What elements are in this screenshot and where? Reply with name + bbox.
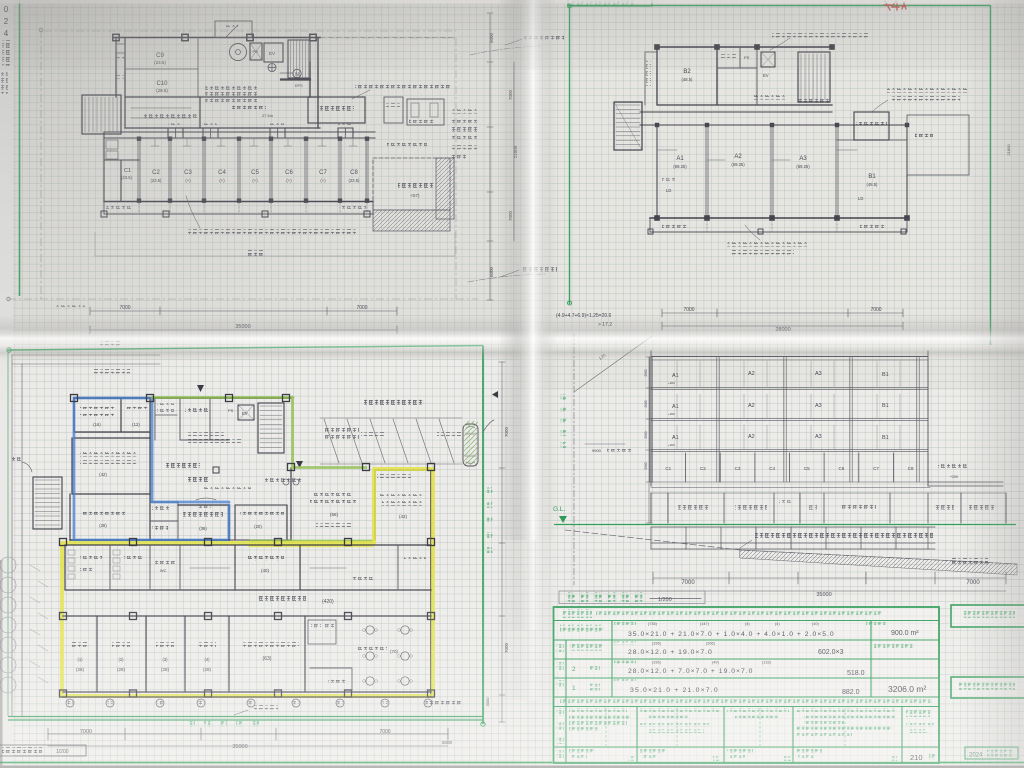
svg-text:C5: C5 <box>804 466 810 471</box>
svg-text:B1: B1 <box>882 435 889 441</box>
svg-text:A3: A3 <box>815 371 822 377</box>
svg-text:C2: C2 <box>700 466 706 471</box>
svg-text:C3: C3 <box>735 466 741 471</box>
svg-text:A2: A2 <box>734 154 742 160</box>
svg-text:C1: C1 <box>665 466 671 471</box>
svg-text:2900: 2900 <box>644 462 648 469</box>
svg-text:C7: C7 <box>873 466 879 471</box>
svg-text:(16): (16) <box>93 422 101 427</box>
svg-text:C6: C6 <box>839 466 845 471</box>
svg-text:A1: A1 <box>672 404 679 410</box>
svg-text:A2: A2 <box>748 371 755 377</box>
svg-text:A3: A3 <box>815 403 822 409</box>
svg-text:LD: LD <box>666 188 671 193</box>
svg-text:(48.5): (48.5) <box>682 77 694 82</box>
svg-text:C4: C4 <box>769 466 775 471</box>
svg-text:+200: +200 <box>668 443 675 447</box>
svg-text:C8: C8 <box>908 466 914 471</box>
svg-text:(69.25): (69.25) <box>673 164 687 169</box>
svg-text:B1: B1 <box>882 403 889 409</box>
svg-text:A3: A3 <box>799 156 807 162</box>
svg-text:(28): (28) <box>99 523 107 528</box>
svg-text:(12): (12) <box>132 422 140 427</box>
svg-text:A1: A1 <box>672 373 679 379</box>
svg-text:(69.25): (69.25) <box>796 164 810 169</box>
svg-text:(48.5): (48.5) <box>867 182 879 187</box>
svg-text:A1: A1 <box>676 156 684 162</box>
svg-text:+200: +200 <box>668 412 675 416</box>
svg-text:9900: 9900 <box>592 448 602 453</box>
svg-text:2900: 2900 <box>644 431 648 438</box>
svg-text:(56): (56) <box>330 512 339 517</box>
svg-text:2900: 2900 <box>644 400 648 407</box>
svg-text:(36): (36) <box>199 526 207 531</box>
svg-text:(69.25): (69.25) <box>731 162 745 167</box>
svg-text:2900: 2900 <box>644 369 648 376</box>
svg-text:B1: B1 <box>882 372 889 378</box>
svg-text:7000: 7000 <box>870 307 881 313</box>
svg-text:+200: +200 <box>950 475 958 479</box>
svg-text:B1: B1 <box>868 174 876 180</box>
svg-text:7000: 7000 <box>683 307 694 313</box>
svg-text:+200: +200 <box>668 381 675 385</box>
svg-text:(42): (42) <box>399 514 408 519</box>
svg-text:LD: LD <box>858 196 863 201</box>
svg-text:A1: A1 <box>672 435 679 441</box>
svg-text:(20): (20) <box>254 524 262 529</box>
svg-text:A3: A3 <box>815 434 822 440</box>
svg-text:(42): (42) <box>99 472 107 477</box>
svg-text:A2: A2 <box>748 434 755 440</box>
svg-text:EV: EV <box>763 73 769 78</box>
svg-text:A2: A2 <box>748 403 755 409</box>
